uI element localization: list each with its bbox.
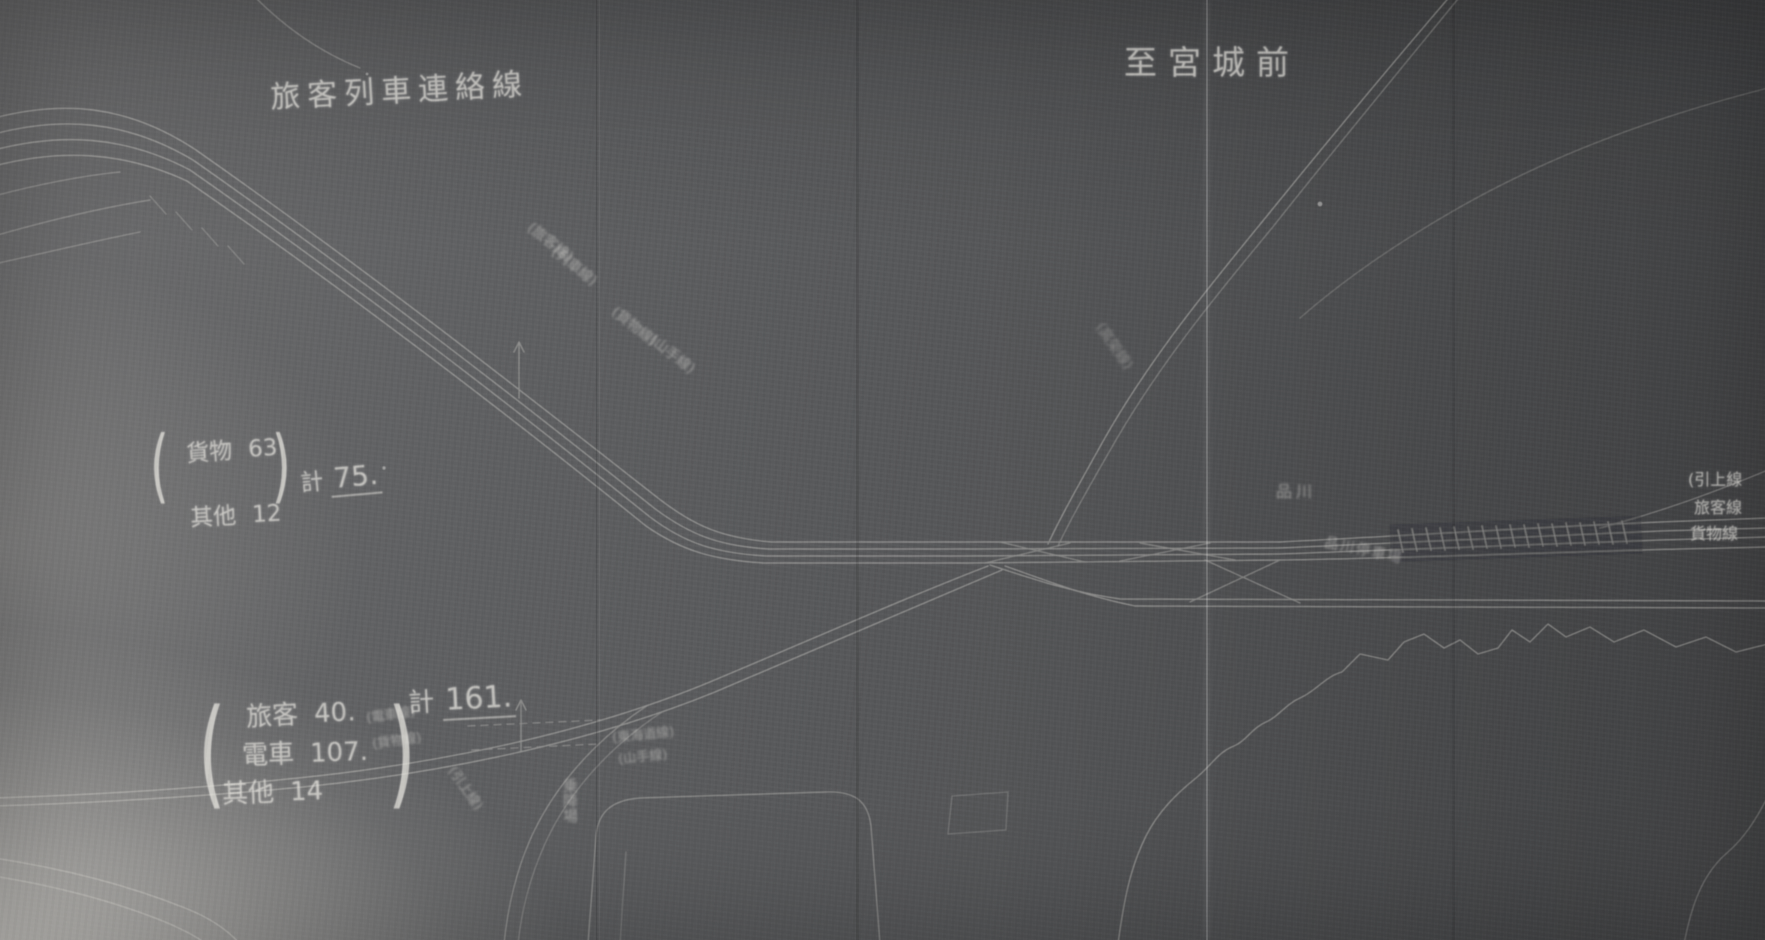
count-row-freight: 貨物63 — [185, 428, 278, 468]
count-row-passenger: 旅客40. — [245, 691, 356, 734]
annotation-right-edge-3: 貨物線 — [1690, 520, 1738, 544]
lower-horizontal-line — [990, 565, 1765, 608]
total-value: 161. — [441, 679, 516, 721]
count-row-emu: 電車107. — [241, 731, 368, 772]
count-value: 14 — [290, 776, 324, 807]
left-edge-track-stubs — [0, 0, 360, 264]
total-value: 75. — [329, 458, 382, 498]
count-value: 107. — [310, 737, 369, 769]
close-paren: ) — [272, 426, 291, 506]
count-total-upper: 計 75. — [299, 457, 382, 498]
label-bottom-center: 乗降場 — [560, 778, 581, 823]
station-yard-band — [1389, 516, 1642, 563]
total-label: 計 — [299, 469, 324, 497]
label-shinagawa: 品川 — [1276, 478, 1316, 502]
count-label: 其他 — [190, 503, 237, 531]
count-row-other: 其他12 — [189, 494, 282, 533]
count-row-other: 其他14 — [221, 770, 323, 811]
label-to-miyagi-mae: 至宮城前 — [1124, 36, 1300, 84]
count-label: 電車 — [242, 739, 295, 771]
upper-track-bundle — [0, 108, 968, 563]
count-total-lower: 計 161. — [407, 677, 516, 720]
north-arrow — [514, 342, 526, 752]
count-label: 旅客 — [245, 700, 299, 733]
open-paren: ( — [150, 426, 169, 506]
count-label: 其他 — [222, 778, 275, 810]
platform-outline — [588, 792, 1008, 940]
count-value: 40. — [313, 697, 356, 729]
dust-specks — [366, 73, 1323, 470]
annotation-right-edge-2: 旅客線 — [1694, 494, 1742, 518]
shoreline-outline — [1118, 624, 1765, 940]
leader-dashes — [468, 720, 600, 750]
junction-crossovers — [985, 542, 1300, 603]
embankment-ticks — [150, 196, 244, 264]
corner-tracks-bottom-left — [0, 858, 240, 940]
railway-map-photo: 旅客列車連絡線 至宮城前 ( 貨物63 其他12 ) 計 75. ( 旅客40.… — [0, 0, 1765, 940]
annotation-right-edge-1: (引上線 — [1688, 466, 1742, 490]
count-label: 貨物 — [185, 438, 233, 467]
